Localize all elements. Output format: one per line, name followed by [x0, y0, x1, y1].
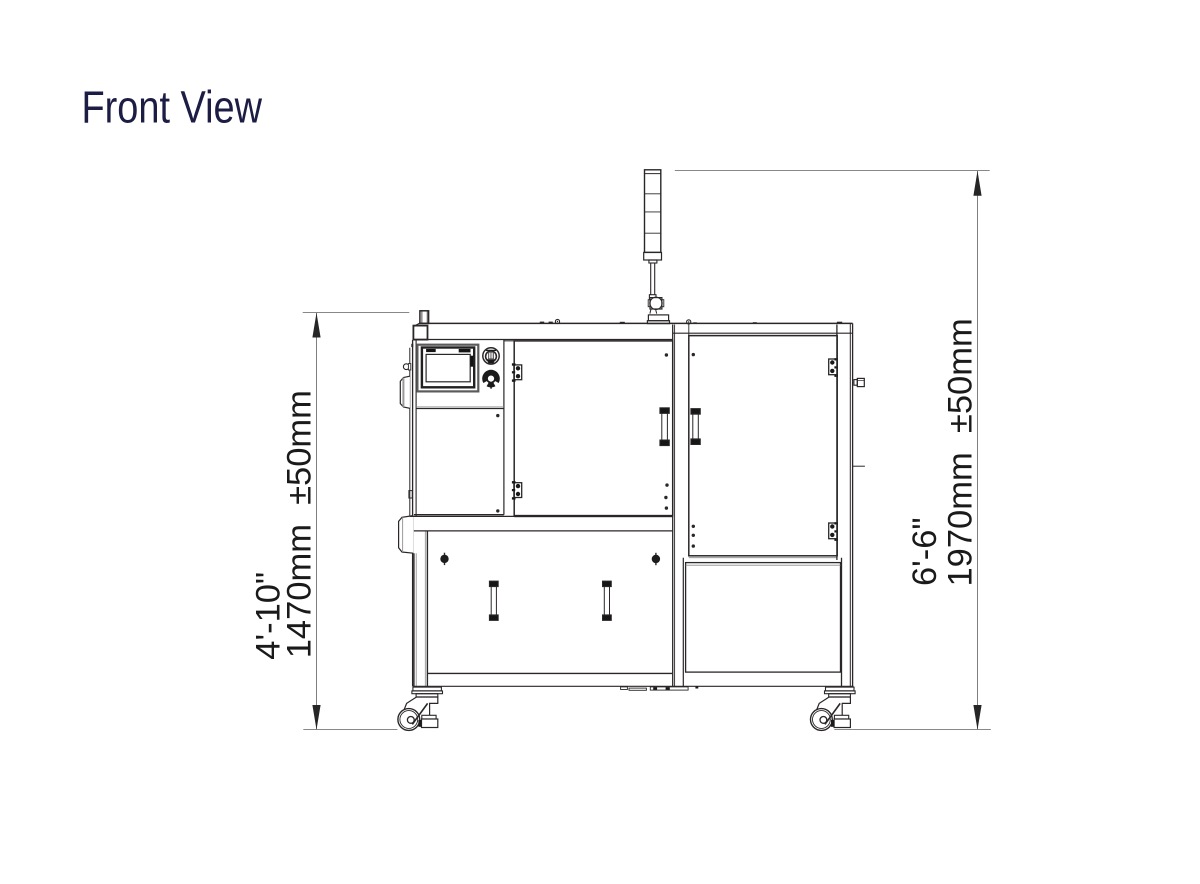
svg-text:Front View: Front View [82, 82, 263, 133]
svg-text:1970mm ±50mm: 1970mm ±50mm [942, 318, 980, 586]
svg-text:6'-6": 6'-6" [906, 517, 944, 586]
svg-text:1470mm ±50mm: 1470mm ±50mm [281, 390, 319, 658]
